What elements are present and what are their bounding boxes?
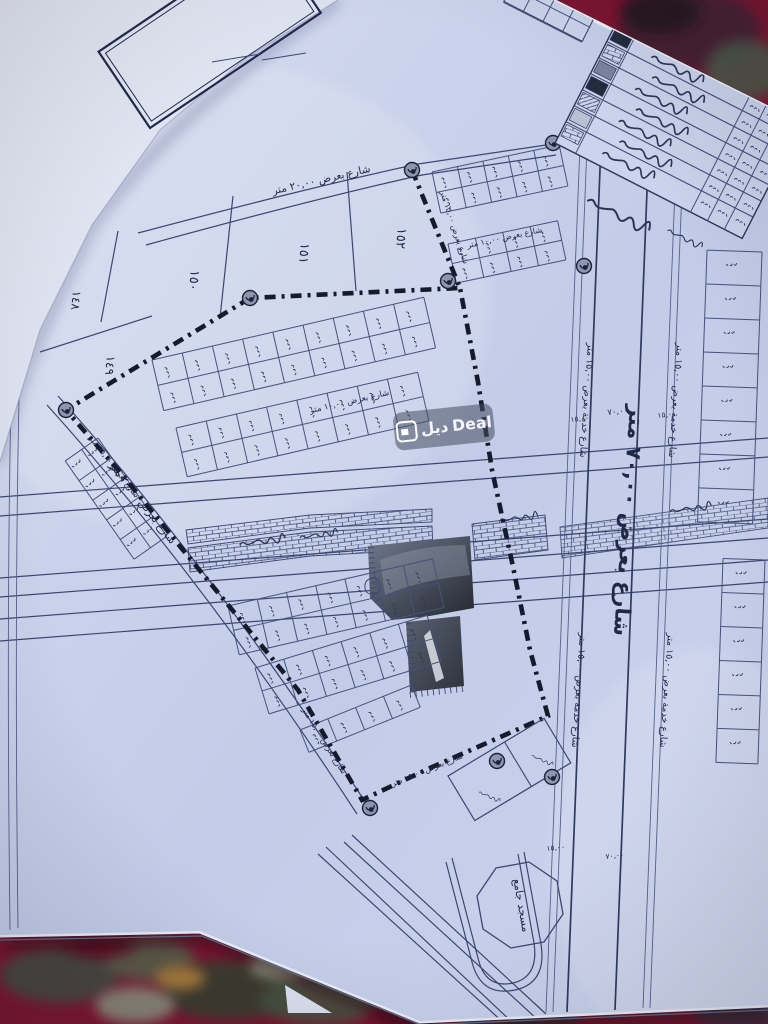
watermark-arabic: ديل (420, 418, 449, 439)
watermark-logo-icon (395, 419, 418, 442)
watermark-latin: Deal (451, 413, 493, 435)
photo-of-subdivision-plan: ١٤٨ ١٤٩ ١٥٠ ١٥١ ١٥٢ شارع بعرض ٧٠,٠٠ متر … (0, 0, 768, 1024)
vignette (0, 0, 768, 1024)
plan-drawing-canvas: ١٤٨ ١٤٩ ١٥٠ ١٥١ ١٥٢ شارع بعرض ٧٠,٠٠ متر … (0, 0, 768, 1024)
